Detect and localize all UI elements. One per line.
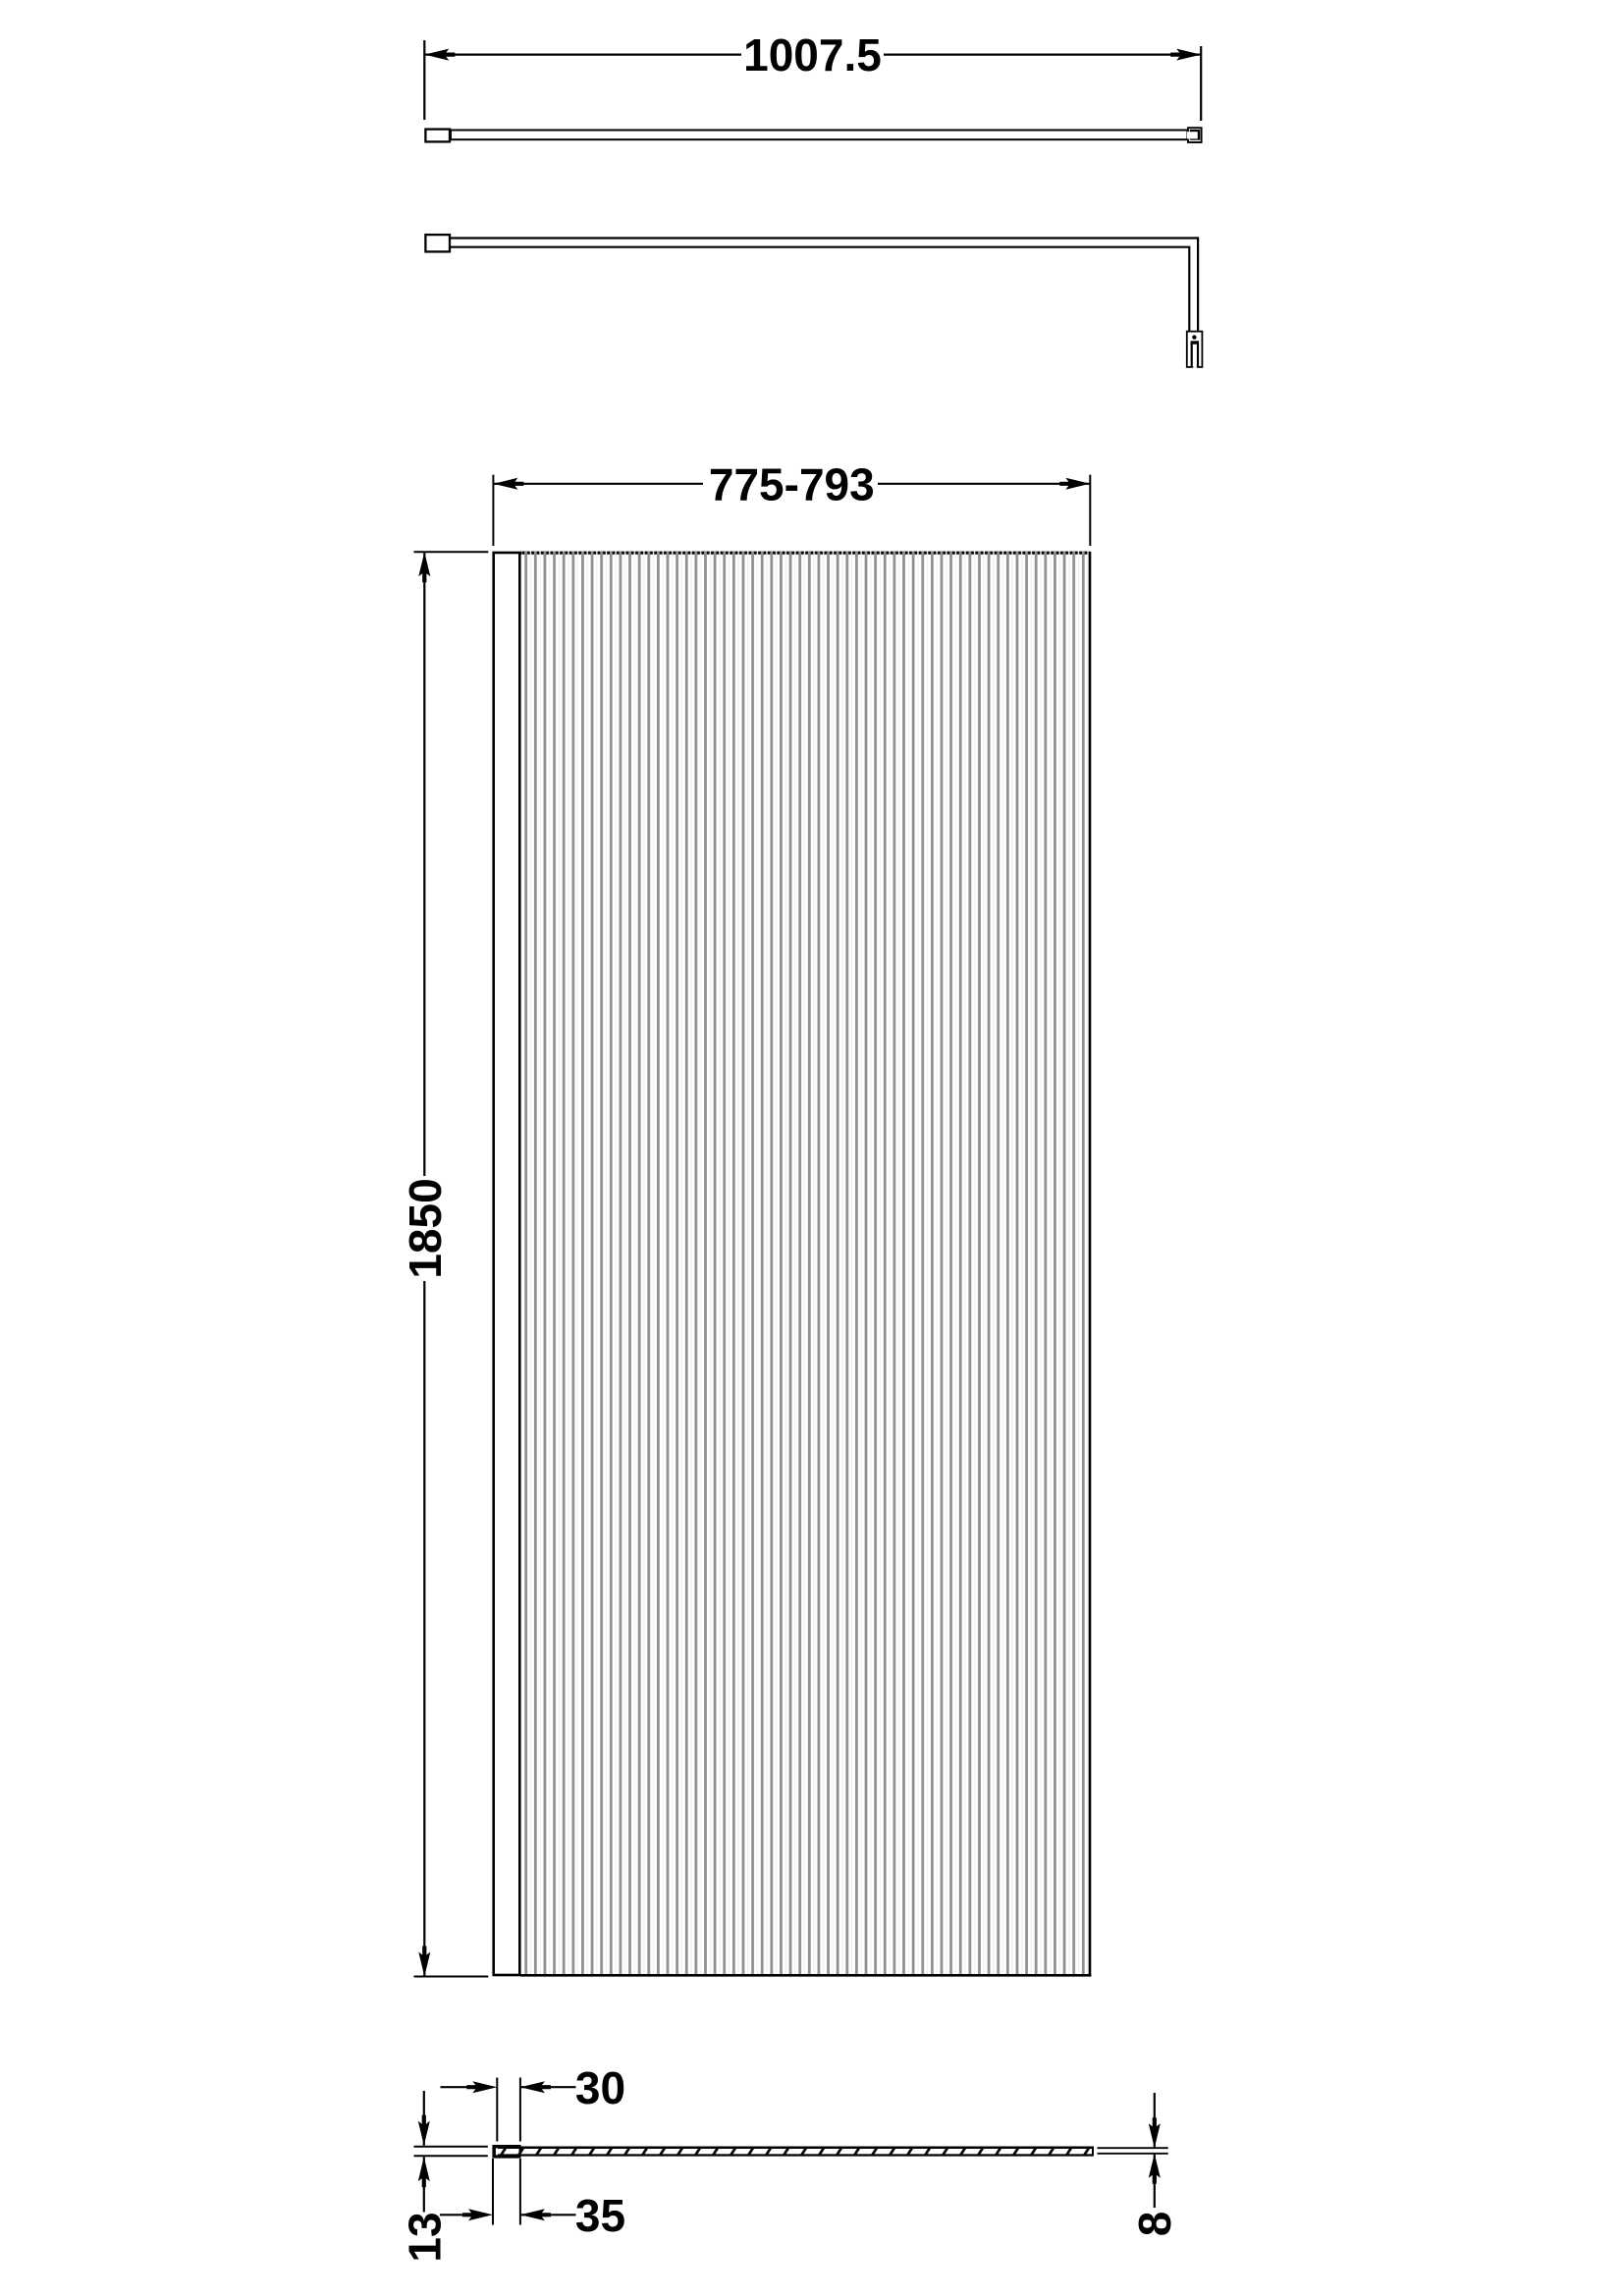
svg-text:35: 35 (575, 2190, 625, 2241)
svg-text:30: 30 (575, 2062, 625, 2113)
svg-text:8: 8 (1129, 2212, 1180, 2237)
svg-text:1007.5: 1007.5 (743, 29, 882, 80)
svg-text:13: 13 (399, 2212, 450, 2262)
svg-text:775-793: 775-793 (709, 459, 875, 510)
svg-text:1850: 1850 (400, 1178, 451, 1278)
